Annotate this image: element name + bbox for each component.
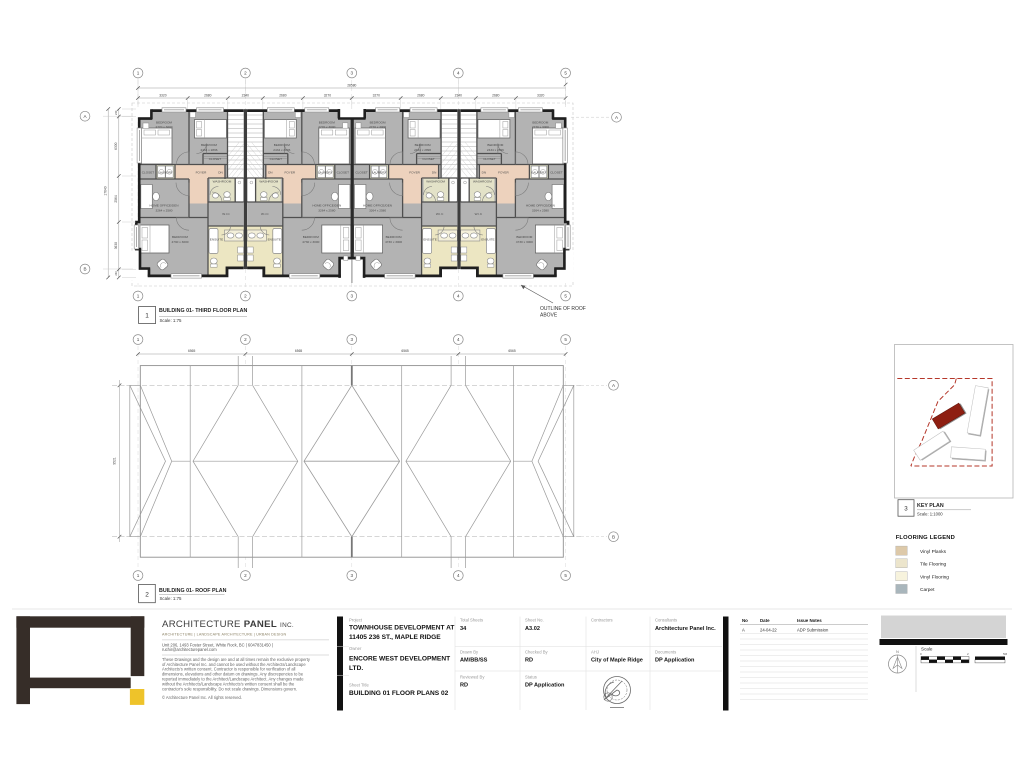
svg-text:FLOORING LEGEND: FLOORING LEGEND bbox=[896, 535, 955, 541]
svg-text:FOYER: FOYER bbox=[196, 170, 207, 174]
svg-text:BEDROOM: BEDROOM bbox=[303, 235, 319, 239]
svg-text:Reviewed By: Reviewed By bbox=[460, 675, 485, 680]
svg-text:CLOSET: CLOSET bbox=[142, 170, 154, 174]
svg-text:FOYER: FOYER bbox=[498, 170, 509, 174]
svg-text:W.I.C: W.I.C bbox=[436, 212, 444, 216]
svg-text:CLOSET: CLOSET bbox=[483, 157, 495, 161]
svg-text:© Architecture Panel Inc. All: © Architecture Panel Inc. All rights res… bbox=[162, 695, 242, 700]
svg-text:ENSUITE: ENSUITE bbox=[481, 237, 494, 241]
svg-text:Consultants: Consultants bbox=[655, 618, 677, 623]
svg-text:2: 2 bbox=[967, 652, 969, 656]
svg-text:Drawn By: Drawn By bbox=[460, 650, 479, 655]
svg-text:3320: 3320 bbox=[159, 93, 167, 97]
svg-text:BUILDING 01- THIRD FLOOR PLAN: BUILDING 01- THIRD FLOOR PLAN bbox=[159, 308, 247, 314]
svg-text:Project: Project bbox=[349, 618, 363, 623]
svg-text:Owner: Owner bbox=[349, 646, 362, 651]
svg-text:Scale: Scale bbox=[921, 647, 933, 652]
svg-text:2: 2 bbox=[244, 294, 247, 299]
svg-text:Checked By: Checked By bbox=[525, 650, 548, 655]
svg-text:1: 1 bbox=[137, 71, 140, 76]
svg-text:2434 x 2896: 2434 x 2896 bbox=[487, 148, 504, 152]
svg-text:Status: Status bbox=[525, 675, 537, 680]
svg-text:6565: 6565 bbox=[401, 349, 409, 353]
svg-text:B: B bbox=[612, 534, 615, 539]
svg-text:DN: DN bbox=[482, 170, 486, 174]
svg-text:Tile Flooring: Tile Flooring bbox=[920, 562, 947, 568]
svg-text:BEDROOM: BEDROOM bbox=[516, 235, 532, 239]
svg-text:W.I.C: W.I.C bbox=[222, 212, 230, 216]
svg-text:Vinyl Flooring: Vinyl Flooring bbox=[920, 574, 949, 580]
svg-text:2680: 2680 bbox=[492, 93, 500, 97]
svg-text:City of Maple Ridge: City of Maple Ridge bbox=[591, 658, 643, 664]
svg-text:5: 5 bbox=[564, 573, 567, 578]
svg-text:LAUNDRY: LAUNDRY bbox=[158, 170, 173, 174]
svg-text:Scale: 1:1000: Scale: 1:1000 bbox=[917, 512, 943, 517]
svg-text:Carpet: Carpet bbox=[920, 587, 935, 593]
svg-text:2564: 2564 bbox=[114, 195, 118, 203]
svg-text:2: 2 bbox=[244, 573, 247, 578]
svg-text:A3.02: A3.02 bbox=[525, 626, 540, 632]
svg-text:ABOVE: ABOVE bbox=[540, 313, 558, 319]
svg-text:4730 x 3000: 4730 x 3000 bbox=[302, 240, 319, 244]
svg-text:3264 x 2580: 3264 x 2580 bbox=[532, 208, 549, 212]
svg-text:0: 0 bbox=[920, 652, 922, 656]
svg-text:HOME OFFICE/DEN: HOME OFFICE/DEN bbox=[526, 203, 555, 207]
svg-text:WASHROOM: WASHROOM bbox=[259, 179, 278, 183]
svg-text:HOME OFFICE/DEN: HOME OFFICE/DEN bbox=[150, 203, 179, 207]
svg-text:BEDROOM: BEDROOM bbox=[487, 143, 503, 147]
svg-text:KEY PLAN: KEY PLAN bbox=[917, 503, 944, 509]
svg-text:DN: DN bbox=[218, 170, 222, 174]
svg-text:4: 4 bbox=[457, 337, 460, 342]
svg-text:HOME OFFICE/DEN: HOME OFFICE/DEN bbox=[363, 203, 392, 207]
svg-text:AM/BB/SS: AM/BB/SS bbox=[460, 658, 488, 664]
svg-text:240: 240 bbox=[114, 271, 118, 276]
svg-text:2770 x 3000: 2770 x 3000 bbox=[318, 125, 335, 129]
svg-text:B: B bbox=[83, 267, 86, 272]
svg-text:ENSUITE: ENSUITE bbox=[268, 237, 281, 241]
svg-text:Date: Date bbox=[760, 618, 770, 623]
svg-text:BEDROOM: BEDROOM bbox=[532, 121, 548, 125]
svg-text:WASHROOM: WASHROOM bbox=[473, 179, 492, 183]
svg-text:DN: DN bbox=[432, 170, 436, 174]
svg-text:4730 x 3000: 4730 x 3000 bbox=[385, 240, 402, 244]
svg-text:ARCHITECTURE | LANDSCAPE ARC: ARCHITECTURE | LANDSCAPE ARCHITECTURE | … bbox=[162, 632, 287, 636]
svg-text:Contractors: Contractors bbox=[591, 618, 613, 623]
svg-text:5M: 5M bbox=[1003, 652, 1008, 656]
svg-text:3264 x 2580: 3264 x 2580 bbox=[155, 208, 172, 212]
svg-text:2770 x 3000: 2770 x 3000 bbox=[532, 125, 549, 129]
svg-text:CLOSET: CLOSET bbox=[355, 170, 367, 174]
svg-text:5: 5 bbox=[564, 294, 567, 299]
svg-text:ADP Submission: ADP Submission bbox=[797, 628, 829, 633]
svg-text:Scale: 1:75: Scale: 1:75 bbox=[160, 596, 183, 601]
svg-text:2: 2 bbox=[244, 337, 247, 342]
svg-text:9521: 9521 bbox=[113, 457, 117, 465]
svg-text:2340: 2340 bbox=[455, 93, 463, 97]
svg-text:3: 3 bbox=[351, 71, 354, 76]
svg-text:2340: 2340 bbox=[242, 93, 250, 97]
svg-text:LAUNDRY: LAUNDRY bbox=[318, 170, 333, 174]
svg-text:11405 236 ST., MAPLE RIDGE: 11405 236 ST., MAPLE RIDGE bbox=[349, 634, 441, 641]
svg-text:3638: 3638 bbox=[114, 242, 118, 250]
svg-text:34: 34 bbox=[460, 626, 467, 632]
svg-text:2: 2 bbox=[244, 71, 247, 76]
svg-text:contractor's sole responsibili: contractor's sole responsibility. Do not… bbox=[162, 686, 297, 691]
svg-text:DP Application: DP Application bbox=[525, 683, 565, 689]
svg-text:LAUNDRY: LAUNDRY bbox=[532, 170, 547, 174]
svg-text:TOWNHOUSE DEVELOPMENT AT: TOWNHOUSE DEVELOPMENT AT bbox=[349, 625, 454, 632]
svg-text:A: A bbox=[742, 628, 745, 633]
svg-text:RD: RD bbox=[525, 658, 533, 664]
svg-text:2680: 2680 bbox=[417, 93, 425, 97]
svg-text:24-04-22: 24-04-22 bbox=[760, 628, 777, 633]
svg-text:CLOSET: CLOSET bbox=[550, 170, 562, 174]
svg-text:CLOSET: CLOSET bbox=[209, 157, 221, 161]
svg-text:DP Application: DP Application bbox=[655, 658, 695, 664]
svg-text:2434 x 2896: 2434 x 2896 bbox=[200, 148, 217, 152]
svg-text:BUILDING 01 FLOOR PLANS 02: BUILDING 01 FLOOR PLANS 02 bbox=[349, 690, 449, 697]
svg-text:3: 3 bbox=[351, 337, 354, 342]
svg-text:1: 1 bbox=[137, 337, 140, 342]
svg-text:DN: DN bbox=[268, 170, 272, 174]
svg-text:LTD.: LTD. bbox=[349, 665, 363, 672]
svg-text:BEDROOM: BEDROOM bbox=[156, 121, 172, 125]
svg-text:5: 5 bbox=[564, 71, 567, 76]
svg-text:Documents: Documents bbox=[655, 650, 676, 655]
svg-text:N: N bbox=[896, 649, 899, 654]
svg-text:6565: 6565 bbox=[295, 349, 303, 353]
svg-text:2680: 2680 bbox=[279, 93, 287, 97]
svg-text:OUTLINE OF ROOF: OUTLINE OF ROOF bbox=[540, 306, 586, 312]
svg-text:Architecture Panel Inc.: Architecture Panel Inc. bbox=[655, 626, 716, 632]
svg-text:W.I.C: W.I.C bbox=[475, 212, 483, 216]
svg-text:6565: 6565 bbox=[508, 349, 516, 353]
svg-text:ENSUITE: ENSUITE bbox=[423, 237, 436, 241]
svg-text:WASHROOM: WASHROOM bbox=[213, 179, 232, 183]
svg-text:3: 3 bbox=[904, 506, 908, 513]
svg-text:BEDROOM: BEDROOM bbox=[172, 235, 188, 239]
svg-text:WASHROOM: WASHROOM bbox=[426, 179, 445, 183]
svg-text:2434 x 2896: 2434 x 2896 bbox=[273, 148, 290, 152]
svg-text:FOYER: FOYER bbox=[284, 170, 295, 174]
svg-text:ENSUITE: ENSUITE bbox=[210, 237, 223, 241]
svg-text:Sheet No.: Sheet No. bbox=[525, 618, 544, 623]
svg-text:4730 x 3000: 4730 x 3000 bbox=[171, 240, 188, 244]
svg-text:1: 1 bbox=[137, 294, 140, 299]
svg-text:2434 x 2896: 2434 x 2896 bbox=[414, 148, 431, 152]
svg-text:2: 2 bbox=[145, 592, 149, 599]
svg-text:W.I.C: W.I.C bbox=[261, 212, 269, 216]
svg-text:ENCORE WEST DEVELOPMENT: ENCORE WEST DEVELOPMENT bbox=[349, 656, 450, 663]
svg-text:3264 x 2580: 3264 x 2580 bbox=[318, 208, 335, 212]
svg-text:Sheet Title: Sheet Title bbox=[349, 683, 369, 688]
svg-text:6565: 6565 bbox=[188, 349, 196, 353]
svg-text:1: 1 bbox=[145, 313, 149, 320]
svg-text:1: 1 bbox=[137, 573, 140, 578]
svg-text:3270: 3270 bbox=[324, 93, 332, 97]
svg-text:2680: 2680 bbox=[204, 93, 212, 97]
svg-text:BEDROOM: BEDROOM bbox=[370, 121, 386, 125]
svg-text:3270: 3270 bbox=[373, 93, 381, 97]
svg-text:6300: 6300 bbox=[114, 142, 118, 150]
svg-text:BEDROOM: BEDROOM bbox=[319, 121, 335, 125]
svg-text:ARCHITECTURE PANEL INC.: ARCHITECTURE PANEL INC. bbox=[162, 619, 294, 630]
svg-text:ruchir@architecturepanel.com: ruchir@architecturepanel.com bbox=[162, 647, 217, 652]
svg-text:No: No bbox=[742, 618, 748, 623]
svg-text:Issue Notes: Issue Notes bbox=[797, 618, 822, 623]
svg-text:3: 3 bbox=[351, 294, 354, 299]
svg-text:LAUNDRY: LAUNDRY bbox=[372, 170, 387, 174]
svg-text:Total Sheets: Total Sheets bbox=[460, 618, 483, 623]
svg-text:BUILDING 01- ROOF PLAN: BUILDING 01- ROOF PLAN bbox=[159, 588, 227, 594]
svg-text:BEDROOM: BEDROOM bbox=[201, 143, 217, 147]
svg-text:CLOSET: CLOSET bbox=[422, 157, 434, 161]
svg-text:BEDROOM: BEDROOM bbox=[386, 235, 402, 239]
svg-text:AHJ: AHJ bbox=[591, 650, 599, 655]
svg-text:CLOSET: CLOSET bbox=[337, 170, 349, 174]
svg-text:3: 3 bbox=[351, 573, 354, 578]
svg-text:2770 x 3000: 2770 x 3000 bbox=[369, 125, 386, 129]
svg-text:3320: 3320 bbox=[537, 93, 545, 97]
svg-text:Scale: 1:75: Scale: 1:75 bbox=[160, 318, 183, 323]
svg-text:2770 x 3000: 2770 x 3000 bbox=[155, 125, 172, 129]
svg-text:4: 4 bbox=[457, 573, 460, 578]
svg-text:240: 240 bbox=[114, 110, 118, 115]
svg-text:BEDROOM: BEDROOM bbox=[274, 143, 290, 147]
svg-text:BEDROOM: BEDROOM bbox=[415, 143, 431, 147]
svg-text:4730 x 3000: 4730 x 3000 bbox=[516, 240, 533, 244]
svg-text:4: 4 bbox=[457, 294, 460, 299]
svg-text:4: 4 bbox=[457, 71, 460, 76]
svg-text:5: 5 bbox=[564, 337, 567, 342]
svg-text:HOME OFFICE/DEN: HOME OFFICE/DEN bbox=[312, 203, 341, 207]
svg-text:RD: RD bbox=[460, 683, 468, 689]
svg-text:Vinyl Planks: Vinyl Planks bbox=[920, 549, 947, 555]
svg-text:CLOSET: CLOSET bbox=[270, 157, 282, 161]
svg-text:28580: 28580 bbox=[347, 83, 356, 87]
svg-text:3264 x 2580: 3264 x 2580 bbox=[369, 208, 386, 212]
svg-text:17640: 17640 bbox=[104, 186, 108, 195]
svg-text:FOYER: FOYER bbox=[409, 170, 420, 174]
